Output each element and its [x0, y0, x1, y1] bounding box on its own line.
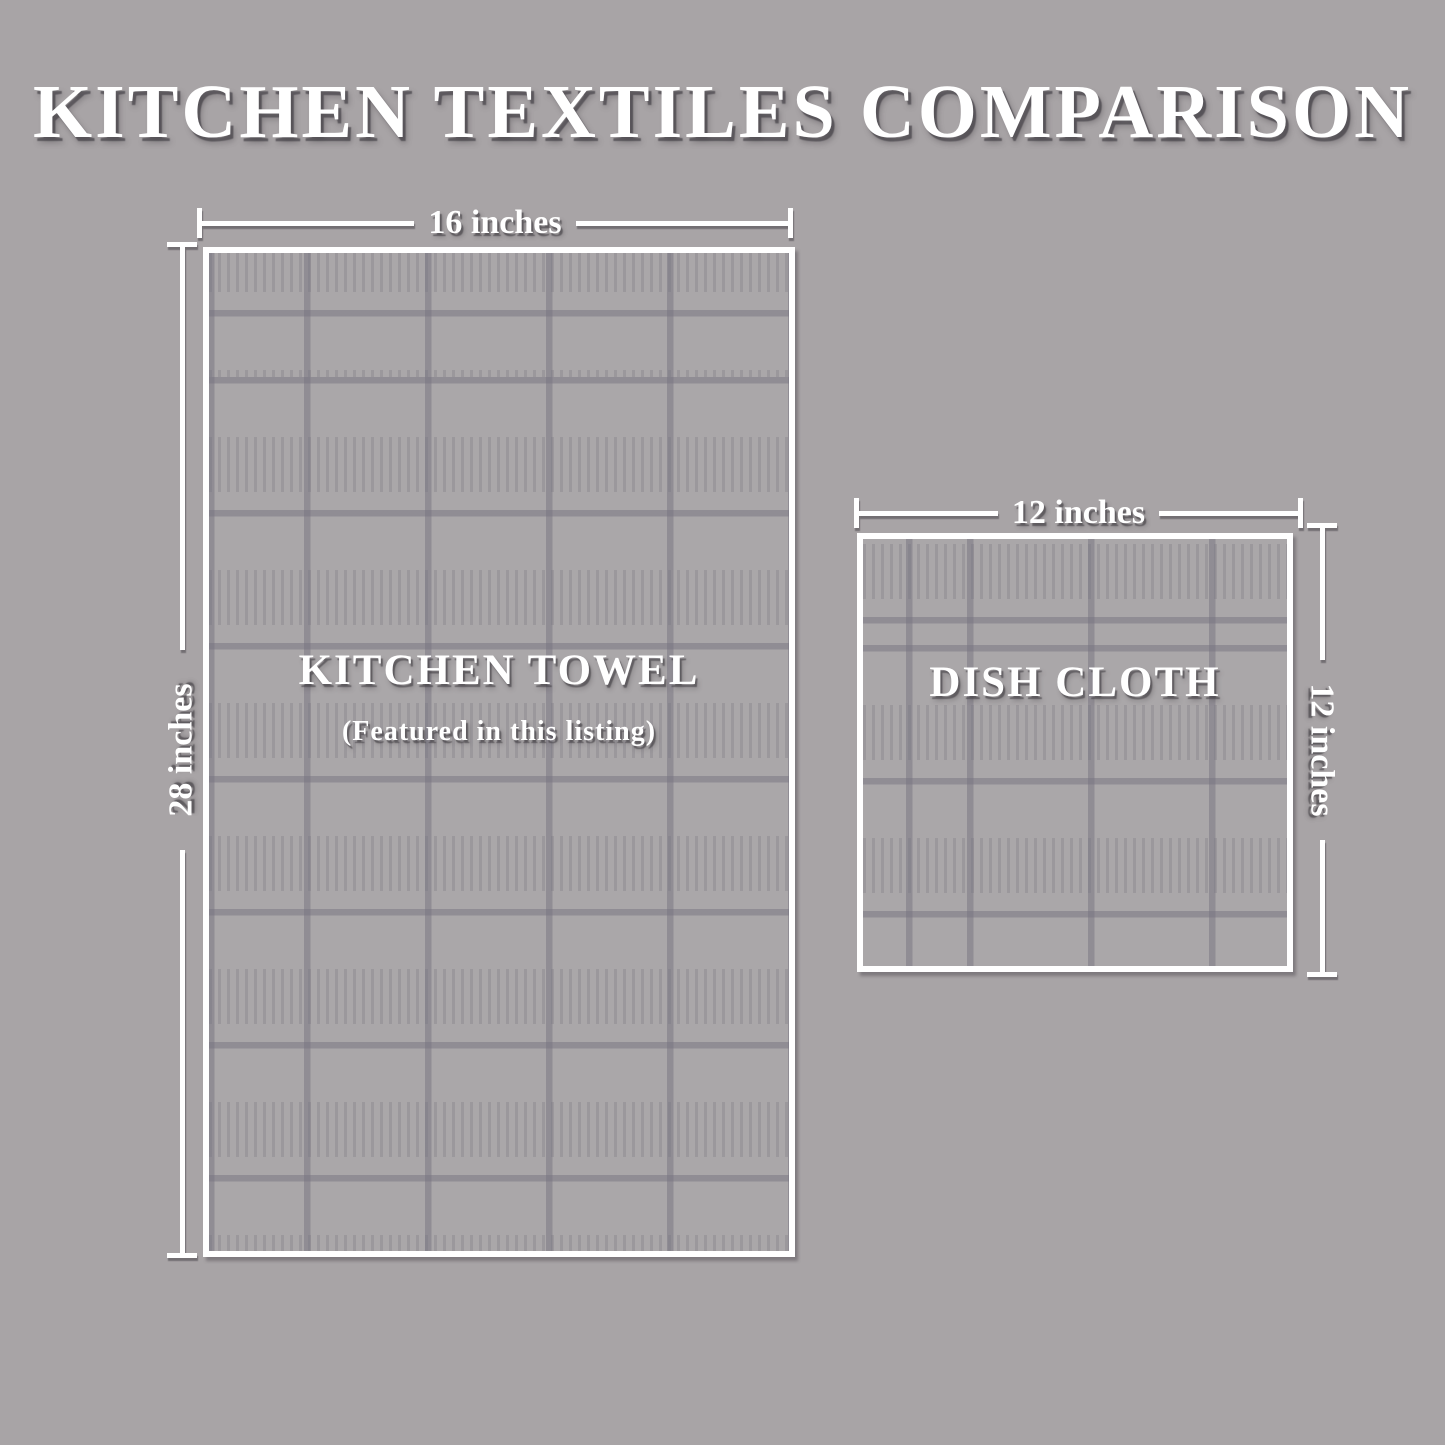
dishcloth-height-label-wrap: 12 inches — [1307, 660, 1337, 840]
dimension-line — [1159, 511, 1298, 516]
dimension-line — [202, 221, 414, 226]
dishcloth-width-label: 12 inches — [1012, 496, 1145, 530]
dish-cloth-swatch: DISH CLOTH — [857, 533, 1293, 972]
dimension-endcap — [1307, 972, 1337, 977]
towel-name: KITCHEN TOWEL — [209, 649, 789, 692]
dishcloth-height-dimension: 12 inches — [1307, 523, 1337, 977]
dishcloth-height-label: 12 inches — [1305, 683, 1339, 816]
dimension-line — [859, 511, 998, 516]
kitchen-towel-swatch: KITCHEN TOWEL (Featured in this listing) — [203, 247, 795, 1257]
towel-height-dimension: 28 inches — [167, 242, 197, 1258]
towel-caption: KITCHEN TOWEL (Featured in this listing) — [209, 649, 789, 746]
dimension-endcap — [788, 208, 793, 238]
towel-width-dimension: 16 inches — [197, 208, 793, 238]
dimension-endcap — [1298, 498, 1303, 528]
dimension-line — [1320, 840, 1325, 972]
dimension-endcap — [167, 1253, 197, 1258]
towel-width-label: 16 inches — [428, 206, 561, 240]
dimension-line — [180, 850, 185, 1253]
page-title: KITCHEN TEXTILES COMPARISON — [0, 74, 1445, 150]
dishcloth-width-dimension: 12 inches — [854, 498, 1303, 528]
towel-note: (Featured in this listing) — [209, 718, 789, 746]
dishcloth-name: DISH CLOTH — [863, 661, 1287, 704]
towel-height-label-wrap: 28 inches — [167, 650, 197, 850]
comparison-diagram: KITCHEN TEXTILES COMPARISON 16 inches 28… — [0, 0, 1445, 1445]
dishcloth-caption: DISH CLOTH — [863, 661, 1287, 704]
dimension-line — [180, 247, 185, 650]
dimension-line — [576, 221, 788, 226]
towel-height-label: 28 inches — [165, 683, 199, 816]
dimension-line — [1320, 528, 1325, 660]
